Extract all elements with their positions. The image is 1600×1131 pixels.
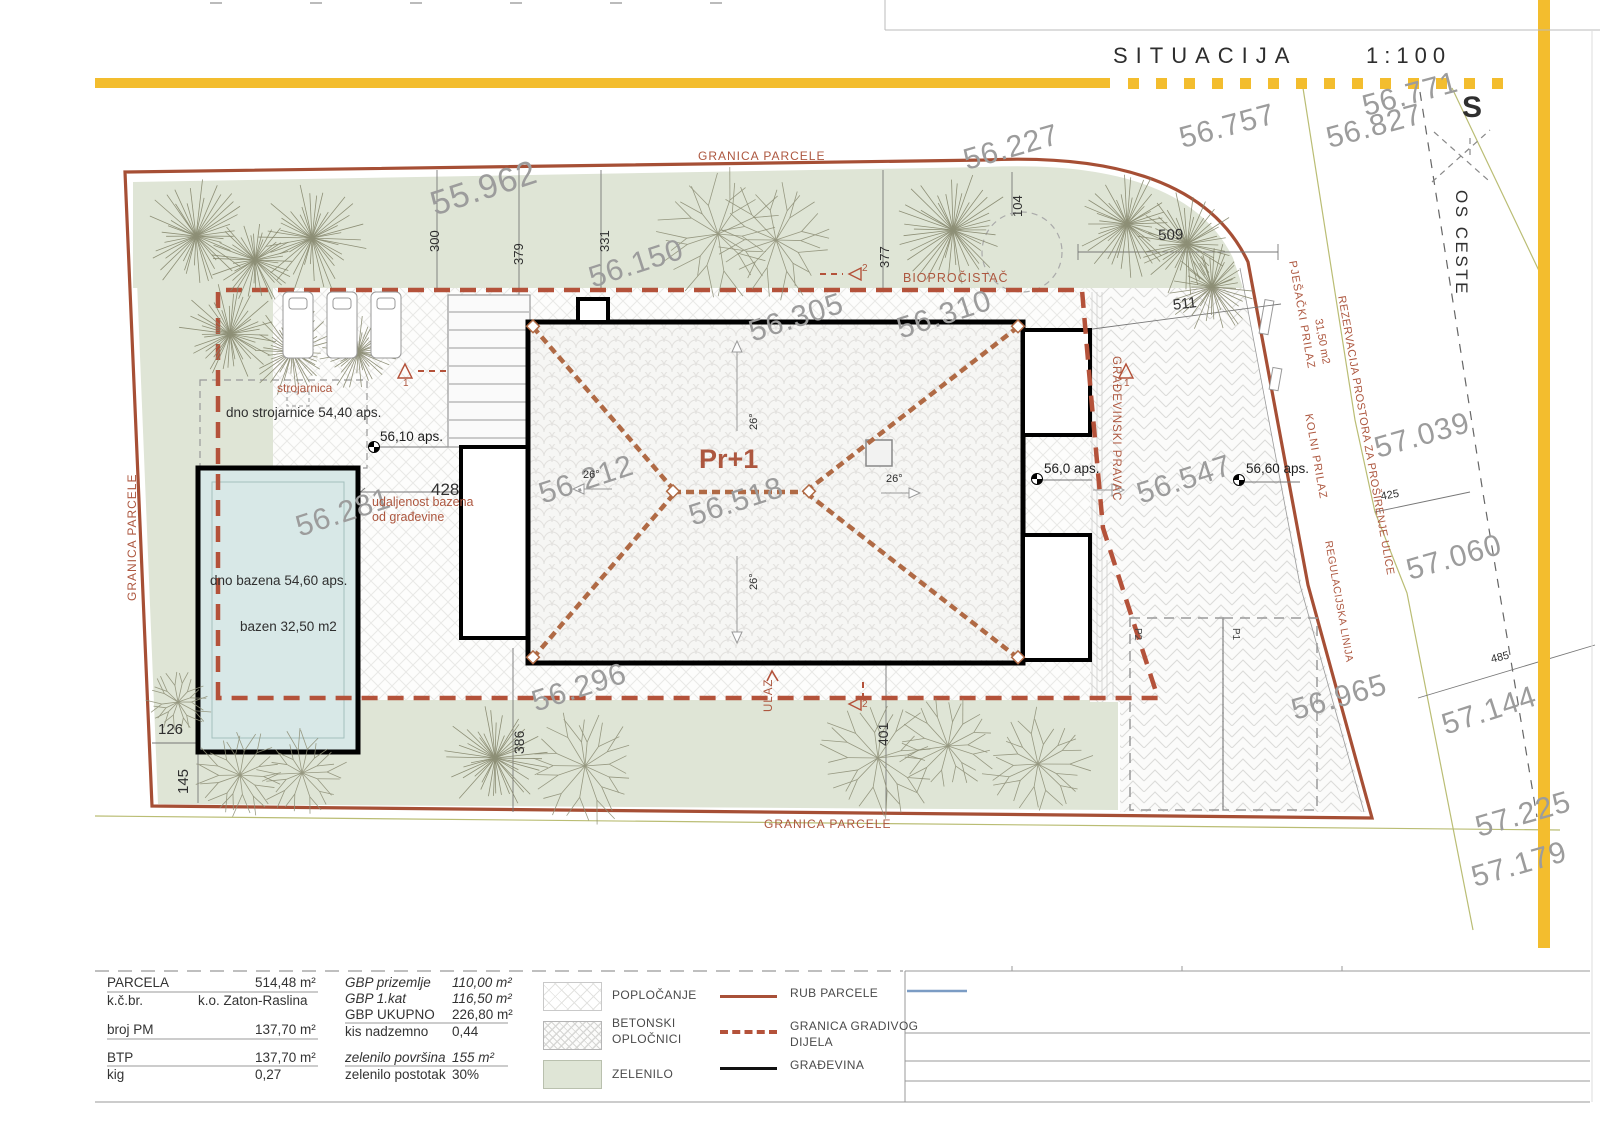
- legend-label: GRAĐEVINA: [790, 1059, 864, 1072]
- plan-note: S: [1462, 92, 1482, 124]
- dimension-label: 300: [428, 230, 442, 252]
- dimension-label: 126: [158, 722, 183, 738]
- external-stairs: [448, 295, 530, 447]
- spot-elevation-label: 56,0 aps.: [1044, 462, 1100, 477]
- legend-label: OPLOČNICI: [612, 1033, 682, 1046]
- road-marking-dash: [1128, 78, 1139, 89]
- section-marker-number: 1: [403, 379, 409, 390]
- legend-label: BETONSKI: [612, 1017, 676, 1030]
- legend-line-solid-black: [720, 1067, 777, 1070]
- stat-label: PARCELA: [107, 976, 169, 991]
- slope-angle-label: 26°: [749, 573, 761, 590]
- plan-red-note: udaljenost bazena: [372, 496, 473, 510]
- legend-swatch-herr: [543, 1021, 602, 1050]
- sun-lounger: [327, 292, 357, 358]
- building-annex: [461, 447, 530, 638]
- slope-angle-label: 26°: [886, 474, 903, 486]
- section-marker-number: 2: [862, 264, 868, 275]
- spot-elevation-marker: [369, 442, 380, 453]
- road-marking-dash: [1296, 78, 1307, 89]
- plan-red-note: GRAĐEVINSKI PRAVAC: [1110, 356, 1122, 501]
- stat-value: k.o. Zaton-Raslina: [198, 994, 308, 1009]
- road-marking-dash: [1212, 78, 1223, 89]
- stat-label: k.č.br.: [107, 994, 143, 1009]
- road-marking-dash: [1184, 78, 1195, 89]
- drawing-scale: 1:100: [1366, 44, 1451, 68]
- road-marking-dash: [1352, 78, 1363, 89]
- stat-label: GBP 1.kat: [345, 992, 406, 1007]
- plan-red-note: GRANICA PARCELE: [126, 474, 139, 601]
- plan-red-note: od građevine: [372, 511, 444, 525]
- legend-swatch-pav: [543, 982, 602, 1011]
- building-terrace-top: [1023, 330, 1090, 435]
- stat-value: 116,50 m²: [452, 992, 512, 1007]
- parking-space-label: P2: [1131, 628, 1142, 640]
- legend-swatch-green: [543, 1060, 602, 1089]
- plan-red-note: GRANICA PARCELE: [764, 818, 891, 831]
- stat-label: GBP UKUPNO: [345, 1008, 435, 1023]
- plan-red-note: strojarnica: [277, 382, 332, 395]
- sun-lounger: [371, 292, 401, 358]
- building-chimney: [578, 299, 608, 322]
- plan-red-note: ULAZ: [763, 679, 775, 712]
- stat-label: zelenilo površina: [345, 1051, 446, 1066]
- site-plan-drawing: [0, 0, 1600, 1131]
- section-marker-number: 2: [862, 700, 868, 711]
- road-marking-dash: [1240, 78, 1251, 89]
- dimension-label: 511: [1172, 295, 1198, 314]
- plan-note: dno strojarnice 54,40 aps.: [226, 406, 381, 421]
- dimension-label: 331: [598, 230, 612, 252]
- stat-value: 0,27: [255, 1068, 281, 1083]
- building-storey-label: Pr+1: [699, 445, 758, 474]
- dimension-label: 386: [512, 731, 527, 754]
- stat-value: 30%: [452, 1068, 479, 1083]
- spot-elevation-marker: [1032, 474, 1043, 485]
- road-marking-dash: [1492, 78, 1503, 89]
- stat-label: kis nadzemno: [345, 1025, 428, 1040]
- stat-value: 137,70 m²: [255, 1023, 316, 1038]
- slope-angle-label: 26°: [583, 470, 600, 482]
- plan-red-note: BIOPROČISTAČ: [903, 272, 1009, 286]
- stat-label: kig: [107, 1068, 124, 1083]
- dimension-label: 509: [1158, 227, 1184, 244]
- stat-label: zelenilo postotak: [345, 1068, 446, 1083]
- plan-note: bazen 32,50 m2: [240, 620, 337, 635]
- spot-elevation-label: 56,60 aps.: [1246, 462, 1309, 477]
- legend-label: GRANICA GRADIVOG: [790, 1020, 918, 1033]
- legend-label: RUB PARCELE: [790, 987, 878, 1000]
- road-marking-dash: [1268, 78, 1279, 89]
- sun-lounger: [283, 292, 313, 358]
- stat-value: 0,44: [452, 1025, 478, 1040]
- road-marking-dash: [1324, 78, 1335, 89]
- stat-value: 137,70 m²: [255, 1051, 316, 1066]
- stat-value: 110,00 m²: [452, 976, 512, 991]
- north-indicator: [1432, 130, 1490, 182]
- road-marking-dash: [1156, 78, 1167, 89]
- dimension-label: 145: [176, 769, 192, 794]
- parking-space-label: P1: [1229, 628, 1240, 640]
- dimension-label: 401: [876, 723, 891, 746]
- stat-value: 155 m²: [452, 1051, 494, 1066]
- road-marking-dash: [1464, 78, 1475, 89]
- plan-red-note: GRANICA PARCELE: [698, 150, 825, 163]
- stat-label: BTP: [107, 1051, 133, 1066]
- plan-note: OS CESTE: [1452, 190, 1470, 296]
- dimension-label: 104: [1011, 195, 1025, 217]
- plan-note: dno bazena 54,60 aps.: [210, 574, 347, 589]
- stat-value: 514,48 m²: [255, 976, 316, 991]
- stat-label: broj PM: [107, 1023, 154, 1038]
- section-marker-number: 1: [1124, 379, 1130, 390]
- building-terrace-bottom: [1023, 535, 1090, 660]
- dimension-label: 377: [878, 246, 892, 268]
- legend-label: ZELENILO: [612, 1068, 673, 1081]
- drawing-title: SITUACIJA: [1113, 44, 1297, 68]
- dimension-label: 379: [512, 243, 526, 265]
- legend-line-solid-red: [720, 995, 777, 998]
- spot-elevation-label: 56,10 aps.: [380, 430, 443, 445]
- legend-label: POPLOČANJE: [612, 989, 697, 1002]
- stat-label: GBP prizemlje: [345, 976, 431, 991]
- stat-value: 226,80 m²: [452, 1008, 513, 1023]
- slope-angle-label: 26°: [749, 413, 761, 430]
- site-plan-sheet: SITUACIJA 1:100 55.96256.15056.22756.757…: [0, 0, 1600, 1131]
- legend-label: DIJELA: [790, 1036, 833, 1049]
- legend-line-dash-red: [720, 1030, 777, 1034]
